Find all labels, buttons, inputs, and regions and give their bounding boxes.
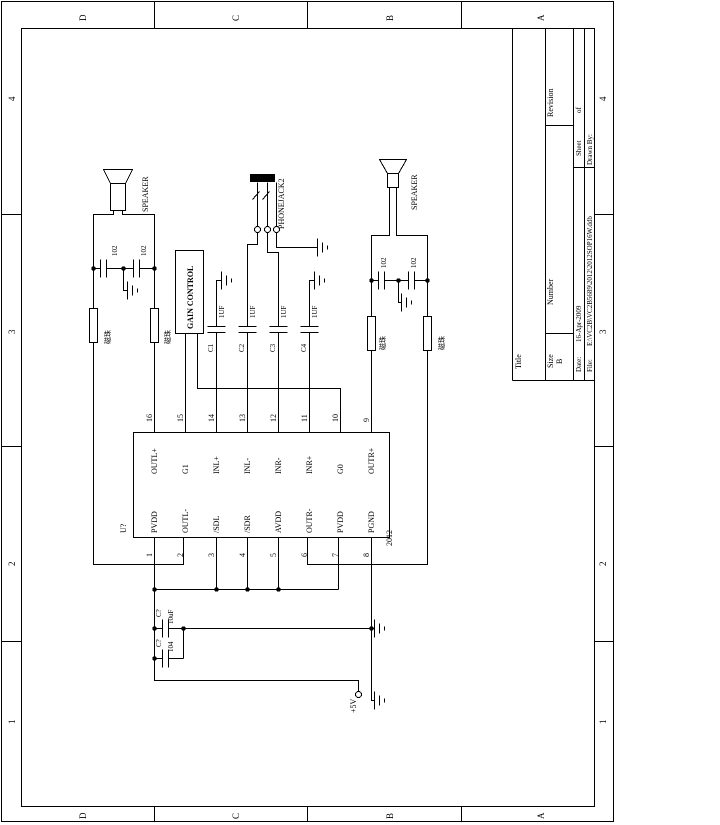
pin-number: 4	[238, 553, 247, 557]
pin-name: G1	[181, 464, 190, 474]
ferrite-bead	[368, 317, 376, 351]
zone-letter-top: A	[536, 14, 546, 21]
pin-number: 5	[269, 553, 278, 557]
wire	[155, 629, 372, 659]
ground-symbol	[315, 272, 325, 290]
pin-name: OUTL-	[181, 509, 190, 533]
cap-ref: C2	[238, 343, 246, 352]
pin-name: /SDR	[243, 515, 252, 533]
power-net-label: +5V	[349, 698, 358, 713]
zone-letter-bottom: D	[78, 812, 88, 819]
revision-label: Revision	[546, 89, 555, 117]
size-value: B	[555, 359, 564, 364]
zone-letter-bottom: C	[231, 813, 241, 819]
ferrite-bead	[424, 317, 432, 351]
pin-number: 10	[331, 414, 340, 422]
pin-name: INL+	[212, 456, 221, 474]
capacitor-plates	[301, 327, 319, 333]
zone-number-right: 4	[598, 96, 608, 101]
cap-value: 1UF	[249, 305, 257, 318]
jack-terminal	[265, 227, 271, 233]
pin-name: OUTL+	[150, 448, 159, 474]
zone-number-left: 3	[7, 329, 17, 334]
pin-number: 14	[207, 414, 216, 422]
zone-letter-bottom: B	[385, 813, 395, 819]
power-terminal	[356, 692, 362, 698]
zone-number-right: 2	[598, 562, 608, 567]
ferrite-bead	[90, 309, 98, 343]
speaker-right-net: SPEAKER 102 102 磁珠 磁珠	[308, 160, 447, 565]
pin-number: 1	[145, 553, 154, 557]
cap-value: 1UF	[218, 305, 226, 318]
title-label: Title	[514, 354, 523, 369]
bead-label: 磁珠	[437, 336, 446, 350]
gain-control: GAIN CONTROL	[176, 251, 341, 433]
wire	[310, 281, 315, 433]
phonejack-label: PHONEJACK2	[277, 178, 286, 229]
cap-value: 102	[111, 245, 119, 256]
ground-symbol	[124, 269, 138, 300]
pin-name: PVDD	[336, 511, 345, 533]
pin-name: PVDD	[150, 511, 159, 533]
gain-control-label: GAIN CONTROL	[186, 266, 195, 329]
wire	[217, 281, 222, 433]
capacitor-plates	[239, 327, 257, 333]
switch-contact	[253, 192, 270, 200]
cap-ref: C4	[300, 343, 308, 352]
ground-symbol	[277, 233, 328, 257]
wire	[123, 211, 155, 433]
pin-name: OUTR-	[305, 508, 314, 533]
pin-number: 16	[145, 414, 154, 422]
speaker-label: SPEAKER	[141, 176, 150, 212]
ground-symbol	[375, 692, 385, 710]
number-label: Number	[546, 278, 555, 305]
wire	[155, 538, 359, 692]
ic-amplifier: U? 2012 16 15 14 13 12 11 10 9 OUTL+ G1 …	[119, 414, 394, 557]
cap-value: 102	[380, 257, 388, 268]
cap-ref: C?	[155, 639, 163, 647]
bead-label: 磁珠	[378, 336, 387, 350]
pin-number: 13	[238, 414, 247, 422]
bead-label: 磁珠	[163, 330, 172, 344]
sheet-label: Sheet	[575, 140, 583, 156]
cap-value: 10uF	[167, 610, 175, 625]
power-net: +5V C? 10uF C? 104	[152, 538, 384, 714]
pin-name: INR-	[274, 457, 283, 474]
pin-number: 11	[300, 414, 309, 422]
pin-name: INL-	[243, 458, 252, 474]
input-caps: C1 1UF C2 1UF C3 1UF C4 1UF	[207, 233, 325, 433]
pin-number: 3	[207, 553, 216, 557]
cap-value: 102	[410, 257, 418, 268]
drawn-by-label: Drawn By:	[586, 134, 594, 165]
cap-ref: C3	[269, 343, 277, 352]
speaker-symbol	[380, 160, 407, 188]
file-label: File:	[586, 359, 594, 372]
pin-name: AVDD	[274, 511, 283, 533]
zone-number-right: 1	[598, 720, 608, 725]
cap-value: 1UF	[280, 305, 288, 318]
schematic-sheet: D C B A D C B A 4 3 2 1 4 3 2 1 Title Si…	[0, 0, 720, 825]
capacitor-plates	[270, 327, 288, 333]
date-value: 16-Apr-2009	[575, 305, 583, 342]
wire	[258, 183, 277, 227]
jack-terminal	[255, 227, 261, 233]
zone-number-right: 3	[598, 329, 608, 334]
size-label: Size	[546, 354, 555, 368]
zone-letter-top: D	[78, 14, 88, 21]
phonejack: PHONEJACK2	[250, 174, 328, 257]
zone-letter-top: B	[385, 15, 395, 21]
zone-number-left: 1	[7, 720, 17, 725]
ground-symbol	[222, 272, 232, 290]
file-value: E:\VC2B\VC2B5689\2012\2012SOP16W.ddb	[586, 216, 594, 346]
pin-name: G0	[336, 464, 345, 474]
speaker-label: SPEAKER	[410, 174, 419, 210]
wire	[372, 538, 375, 701]
pin-number: 8	[362, 553, 371, 557]
pin-number: 12	[269, 414, 278, 422]
pin-name: /SDL	[212, 516, 221, 533]
cap-value: 104	[167, 641, 175, 652]
wire	[372, 188, 390, 433]
pin-number: 9	[362, 418, 371, 422]
zone-number-left: 4	[7, 96, 17, 101]
ic-part-number: 2012	[385, 530, 394, 546]
ground-symbol	[399, 281, 412, 312]
cap-ref: C?	[155, 609, 163, 617]
pin-number: 15	[176, 414, 185, 422]
pin-name: OUTR+	[367, 447, 376, 474]
zone-letter-bottom: A	[536, 812, 546, 819]
pin-name: INR+	[305, 455, 314, 474]
title-block: Title Size B Number Revision Date: 16-Ap…	[513, 29, 595, 381]
speaker-symbol	[104, 170, 133, 211]
capacitor-plates	[208, 327, 226, 333]
ferrite-bead	[151, 309, 159, 343]
bead-label: 磁珠	[103, 330, 112, 344]
date-label: Date:	[575, 357, 583, 372]
speaker-left-net: SPEAKER 102 102 磁珠 磁珠	[90, 170, 184, 565]
ic-designator: U?	[119, 523, 128, 533]
wire	[308, 188, 428, 565]
pin-name: PGND	[367, 511, 376, 533]
cap-value: 102	[140, 245, 148, 256]
wire	[155, 538, 339, 590]
cap-ref: C1	[207, 343, 215, 352]
zone-number-left: 2	[7, 562, 17, 567]
cap-value: 1UF	[311, 305, 319, 318]
zone-letter-top: C	[231, 15, 241, 21]
of-label: of	[575, 107, 583, 114]
